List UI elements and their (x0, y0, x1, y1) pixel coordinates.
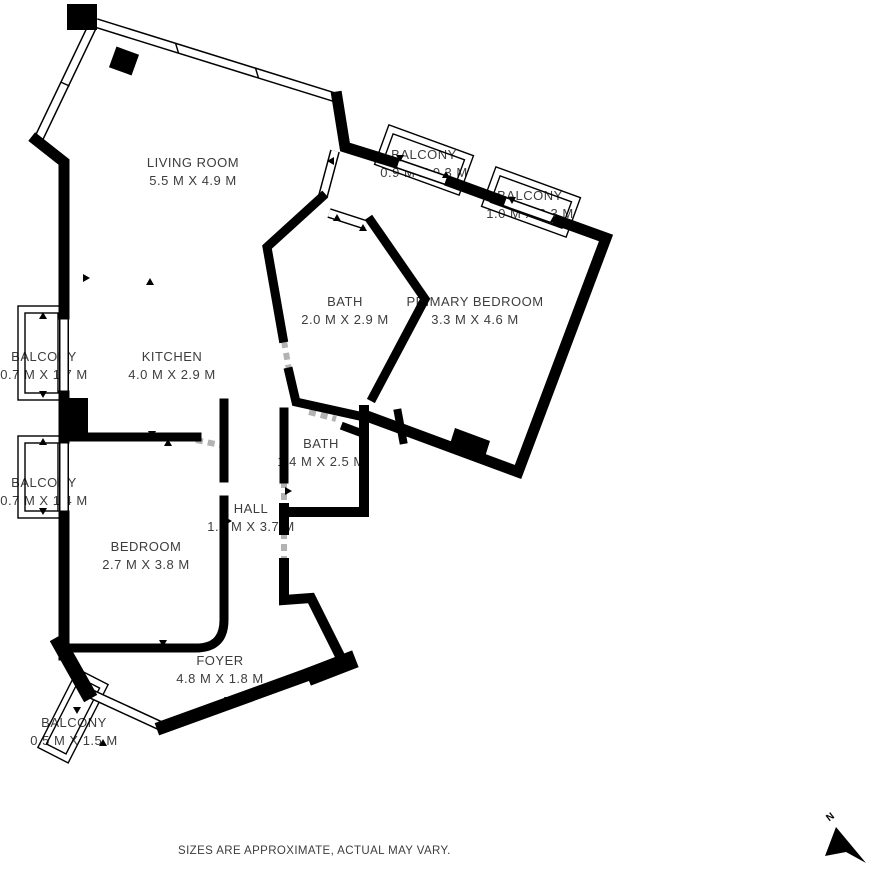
room-name: PRIMARY BEDROOM (406, 293, 543, 311)
room-name: BALCONY (391, 146, 457, 164)
room-dims: 0.5 M X 1.5 M (30, 732, 117, 750)
room-name: HALL (234, 500, 269, 518)
room-label-balcony-left-1: BALCONY 0.7 M X 1.7 M (0, 348, 87, 384)
walls (36, 4, 606, 727)
room-label-primary-bedroom: PRIMARY BEDROOM 3.3 M X 4.6 M (406, 293, 543, 329)
room-label-kitchen: KITCHEN 4.0 M X 2.9 M (128, 348, 215, 384)
room-name: BALCONY (41, 714, 107, 732)
room-name: BEDROOM (111, 538, 182, 556)
room-dims: 1.1 M X 3.7 M (207, 518, 294, 536)
room-name: BATH (327, 293, 363, 311)
floor-plan: LIVING ROOM 5.5 M X 4.9 M BALCONY 0.9 M … (0, 0, 884, 875)
room-label-balcony-top-1: BALCONY 0.9 M X 0.3 M (380, 146, 467, 182)
pillar (109, 47, 139, 76)
room-label-hall: HALL 1.1 M X 3.7 M (207, 500, 294, 536)
room-label-bath-1: BATH 2.0 M X 2.9 M (301, 293, 388, 329)
room-name: BALCONY (497, 187, 563, 205)
room-label-balcony-left-2: BALCONY 0.7 M X 1.4 M (0, 474, 87, 510)
floor-plan-drawing: N (0, 0, 884, 875)
room-label-bath-2: BATH 1.4 M X 2.5 M (277, 435, 364, 471)
disclaimer-text: SIZES ARE APPROXIMATE, ACTUAL MAY VARY. (178, 845, 451, 857)
room-name: BATH (303, 435, 339, 453)
room-dims: 4.0 M X 2.9 M (128, 366, 215, 384)
room-dims: 0.7 M X 1.7 M (0, 366, 87, 384)
room-dims: 0.9 M X 0.3 M (380, 164, 467, 182)
room-dims: 2.7 M X 3.8 M (102, 556, 189, 574)
room-name: BALCONY (11, 348, 77, 366)
room-dims: 2.0 M X 2.9 M (301, 311, 388, 329)
room-label-balcony-top-2: BALCONY 1.0 M X 0.3 M (486, 187, 573, 223)
room-label-bedroom: BEDROOM 2.7 M X 3.8 M (102, 538, 189, 574)
room-name: KITCHEN (142, 348, 203, 366)
room-dims: 0.7 M X 1.4 M (0, 492, 87, 510)
room-dims: 4.8 M X 1.8 M (176, 670, 263, 688)
room-dims: 3.3 M X 4.6 M (431, 311, 518, 329)
room-dims: 1.0 M X 0.3 M (486, 205, 573, 223)
room-name: LIVING ROOM (147, 154, 239, 172)
room-label-foyer: FOYER 4.8 M X 1.8 M (176, 652, 263, 688)
room-dims: 1.4 M X 2.5 M (277, 453, 364, 471)
north-arrow-icon: N (824, 811, 866, 863)
room-name: BALCONY (11, 474, 77, 492)
north-label: N (824, 811, 836, 824)
room-label-living-room: LIVING ROOM 5.5 M X 4.9 M (147, 154, 239, 190)
room-label-balcony-bottom: BALCONY 0.5 M X 1.5 M (30, 714, 117, 750)
room-name: FOYER (196, 652, 243, 670)
windows (38, 23, 559, 727)
room-dims: 5.5 M X 4.9 M (149, 172, 236, 190)
